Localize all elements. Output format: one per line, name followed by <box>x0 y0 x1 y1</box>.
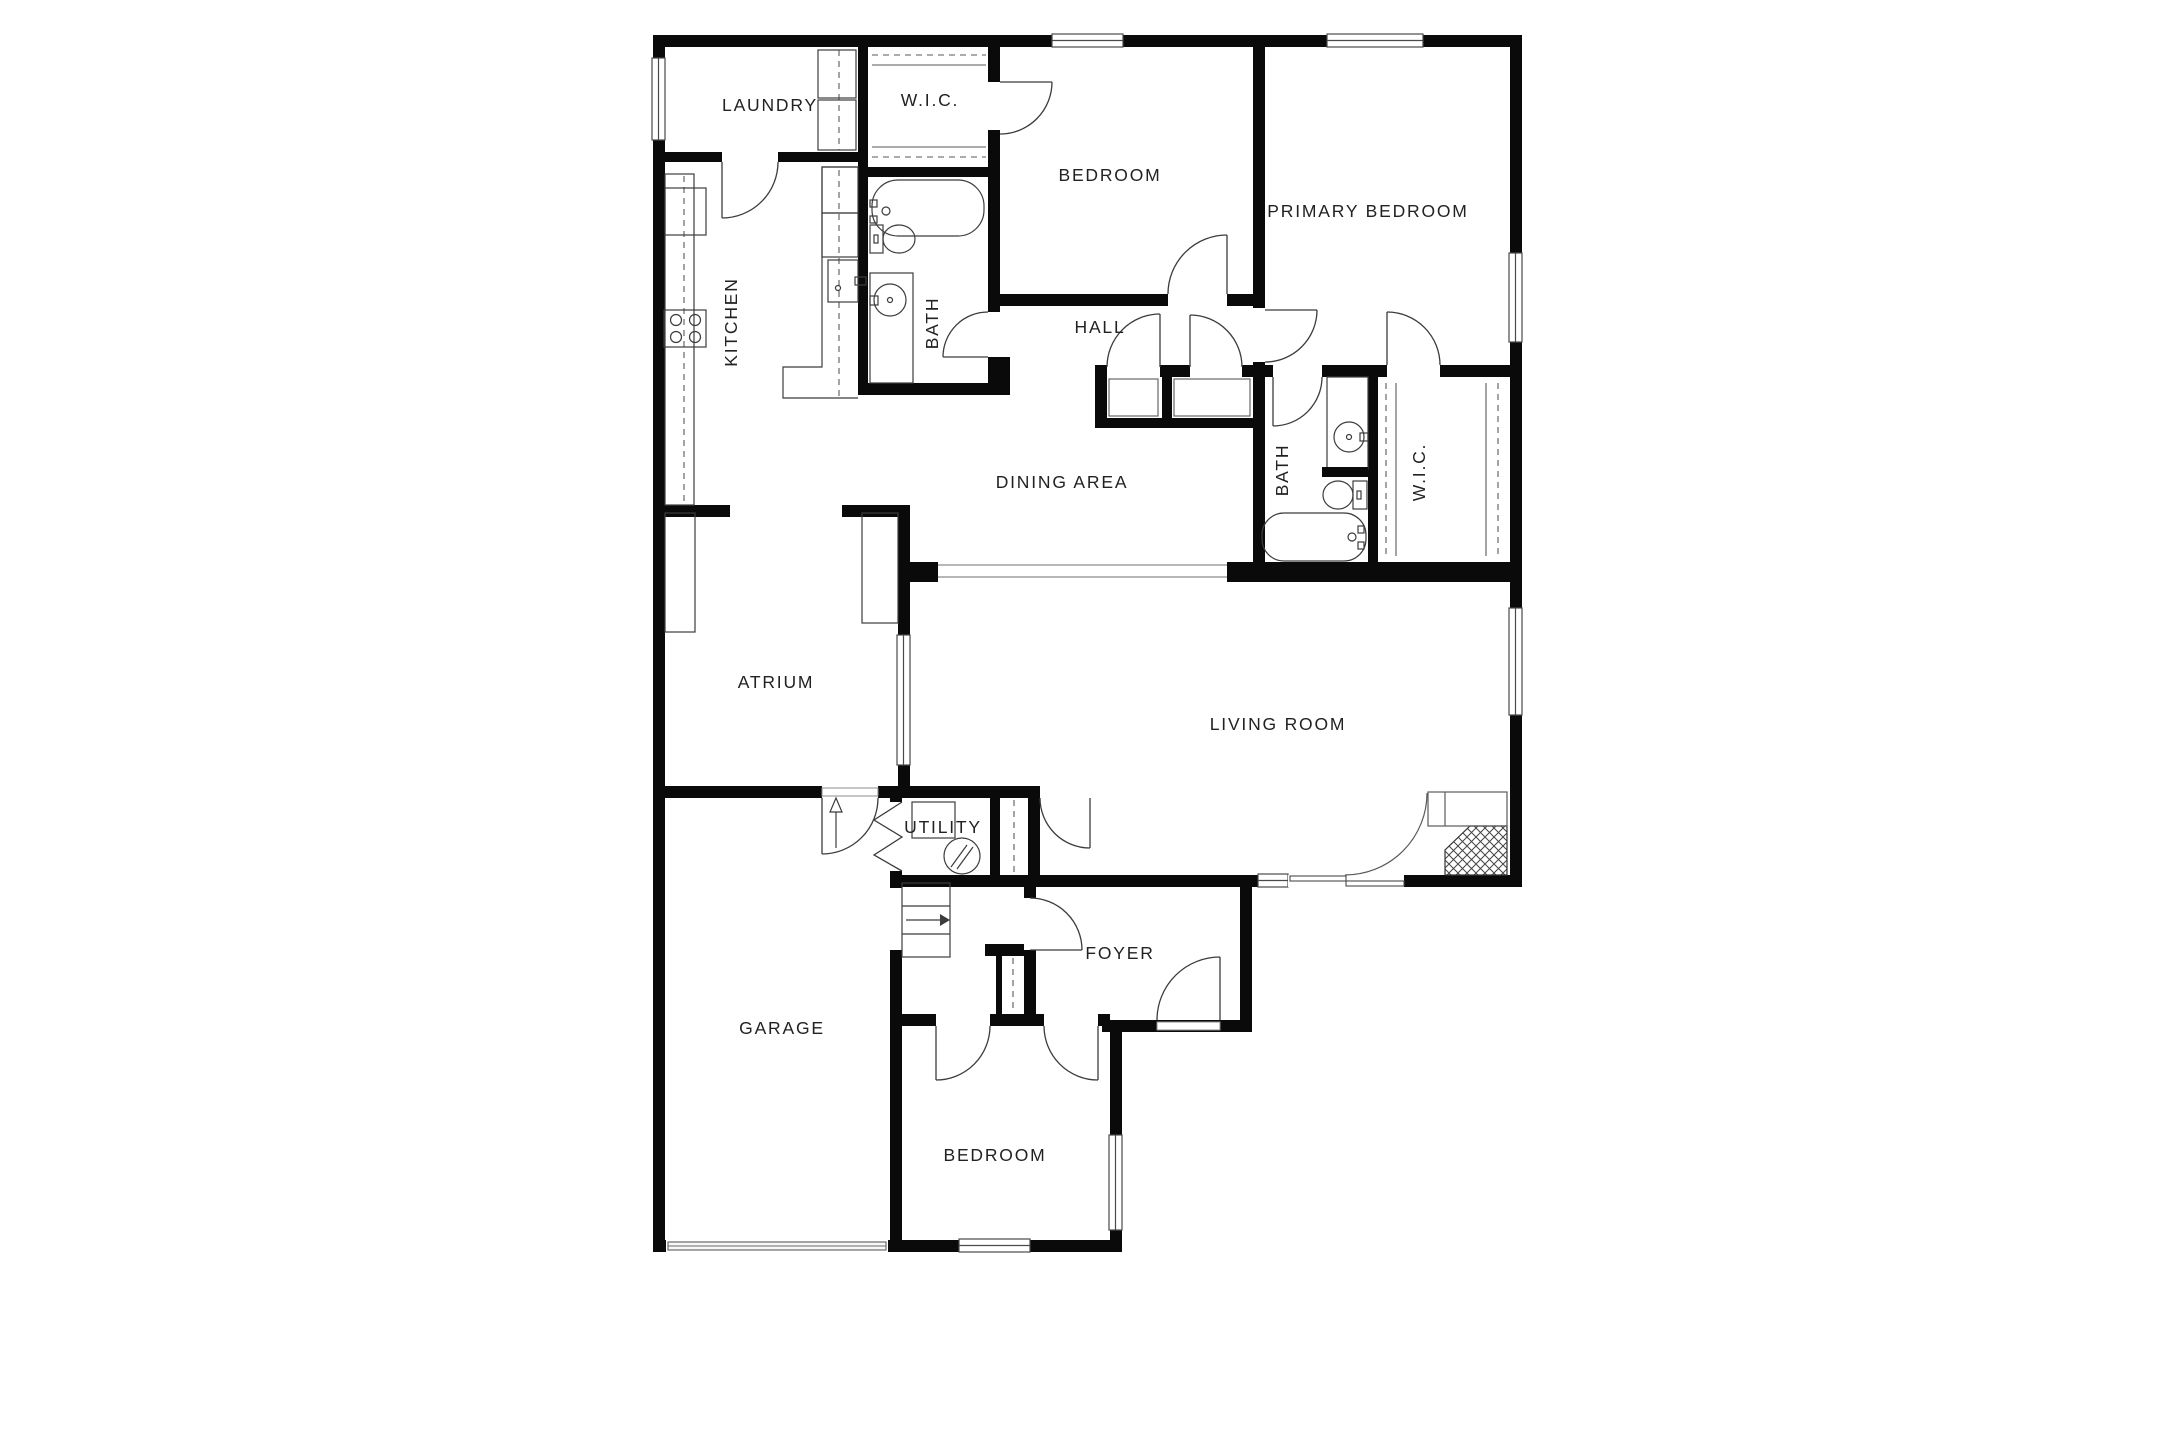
bathtub-right-icon <box>1262 513 1366 561</box>
door-foyer-landing-icon <box>1030 898 1082 950</box>
vanity-sink-top-icon <box>870 273 913 383</box>
label-living-room: LIVING ROOM <box>1210 714 1346 734</box>
door-bath-right-icon <box>1273 377 1322 426</box>
window-laundry-left-icon <box>652 58 665 140</box>
cabinet-dashed-lines <box>684 50 839 502</box>
label-foyer: FOYER <box>1085 943 1154 963</box>
window-primary-right-icon <box>1509 253 1522 342</box>
open-passage-dining-living <box>938 565 1227 577</box>
door-living-mudhall-icon <box>1040 798 1090 848</box>
door-bedroom-top-icon <box>1168 235 1227 294</box>
entry-arrow-icon <box>830 798 842 848</box>
label-bedroom-bottom: BEDROOM <box>943 1145 1046 1165</box>
door-hall-closet-right-icon <box>1190 315 1242 367</box>
accordion-door-utility-icon <box>874 802 902 871</box>
stove-cooktop-icon <box>664 310 706 347</box>
label-wic-top: W.I.C. <box>901 90 959 110</box>
label-atrium: ATRIUM <box>738 672 815 692</box>
refrigerator-icon <box>665 188 706 235</box>
room-labels: LAUNDRY W.I.C. BEDROOM PRIMARY BEDROOM K… <box>721 90 1469 1165</box>
floor-plan-drawing: LAUNDRY W.I.C. BEDROOM PRIMARY BEDROOM K… <box>0 0 2173 1448</box>
door-laundry-icon <box>722 162 778 218</box>
label-garage: GARAGE <box>739 1018 825 1038</box>
label-utility: UTILITY <box>904 817 982 837</box>
window-living-right-icon <box>1509 608 1522 715</box>
label-bedroom-top: BEDROOM <box>1058 165 1161 185</box>
door-bath-top-icon <box>943 312 988 357</box>
door-wic-right-icon <box>1387 312 1440 365</box>
vanity-sink-right-icon <box>1327 377 1368 469</box>
label-bath-top: BATH <box>922 297 942 350</box>
label-wic-right: W.I.C. <box>1409 443 1429 501</box>
label-primary-bedroom: PRIMARY BEDROOM <box>1267 201 1468 221</box>
door-atrium-entry-icon <box>822 788 878 854</box>
closet-rod-wic-right-icon <box>1386 383 1498 556</box>
half-wall-icon <box>1322 467 1368 477</box>
toilet-top-icon <box>870 225 915 253</box>
window-bedroom-top-icon <box>1052 34 1123 47</box>
kitchen-counter-icon <box>665 167 858 505</box>
window-primary-top-icon <box>1327 34 1423 47</box>
window-living-south-icon <box>1258 874 1288 887</box>
sliding-glass-door-icon <box>1288 875 1404 887</box>
door-front-entry-icon <box>1157 957 1220 1030</box>
toilet-right-icon <box>1323 481 1367 509</box>
door-bedroom-bottom-left-icon <box>936 1026 990 1080</box>
label-hall: HALL <box>1075 317 1126 337</box>
label-laundry: LAUNDRY <box>722 95 818 115</box>
atrium-storage-icon <box>665 513 898 632</box>
door-bedroom-bottom-right-icon <box>1044 1026 1098 1080</box>
garage-door-icon <box>666 1240 888 1252</box>
washer-dryer-icon <box>818 50 856 150</box>
label-bath-right: BATH <box>1272 444 1292 497</box>
water-heater-icon <box>944 838 980 874</box>
label-kitchen: KITCHEN <box>721 277 741 366</box>
fireplace-icon <box>1345 792 1507 875</box>
door-wic-top-icon <box>1000 82 1052 134</box>
floor-plan-canvas: LAUNDRY W.I.C. BEDROOM PRIMARY BEDROOM K… <box>0 0 2173 1448</box>
window-atrium-glass-icon <box>897 635 910 765</box>
window-bedroom-bottom-south-icon <box>959 1239 1030 1252</box>
bathtub-top-icon <box>870 180 984 236</box>
label-dining-area: DINING AREA <box>996 472 1129 492</box>
window-bedroom-bottom-east-icon <box>1109 1135 1122 1230</box>
fixtures <box>664 50 1507 957</box>
stairs-icon <box>902 883 950 957</box>
door-primary-bedroom-icon <box>1265 310 1317 362</box>
